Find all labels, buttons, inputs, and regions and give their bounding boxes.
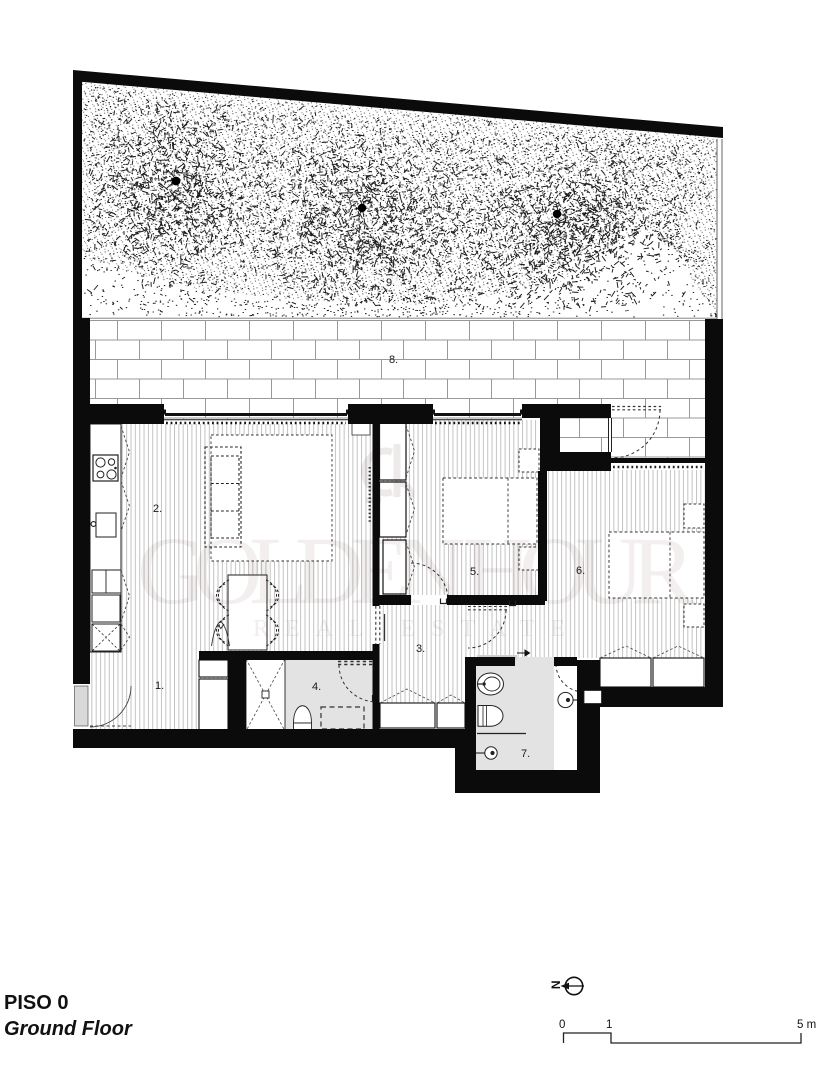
svg-text:4.: 4. <box>312 681 321 693</box>
svg-text:GOLDEN HOUR: GOLDEN HOUR <box>137 517 695 624</box>
svg-text:REAL ESTATE: REAL ESTATE <box>253 616 575 642</box>
svg-text:Ground Floor: Ground Floor <box>4 1018 133 1040</box>
svg-text:1: 1 <box>606 1019 612 1031</box>
svg-text:2.: 2. <box>153 503 162 515</box>
svg-text:9.: 9. <box>386 277 395 289</box>
svg-text:3.: 3. <box>416 643 425 655</box>
svg-text:8.: 8. <box>389 354 398 366</box>
svg-text:5.: 5. <box>470 566 479 578</box>
svg-text:0: 0 <box>559 1019 565 1031</box>
svg-text:5 m: 5 m <box>797 1019 816 1031</box>
svg-text:7.: 7. <box>521 748 530 760</box>
svg-text:PISO 0: PISO 0 <box>4 992 68 1014</box>
svg-text:1.: 1. <box>155 680 164 692</box>
svg-text:N: N <box>549 981 563 990</box>
svg-text:6.: 6. <box>576 565 585 577</box>
